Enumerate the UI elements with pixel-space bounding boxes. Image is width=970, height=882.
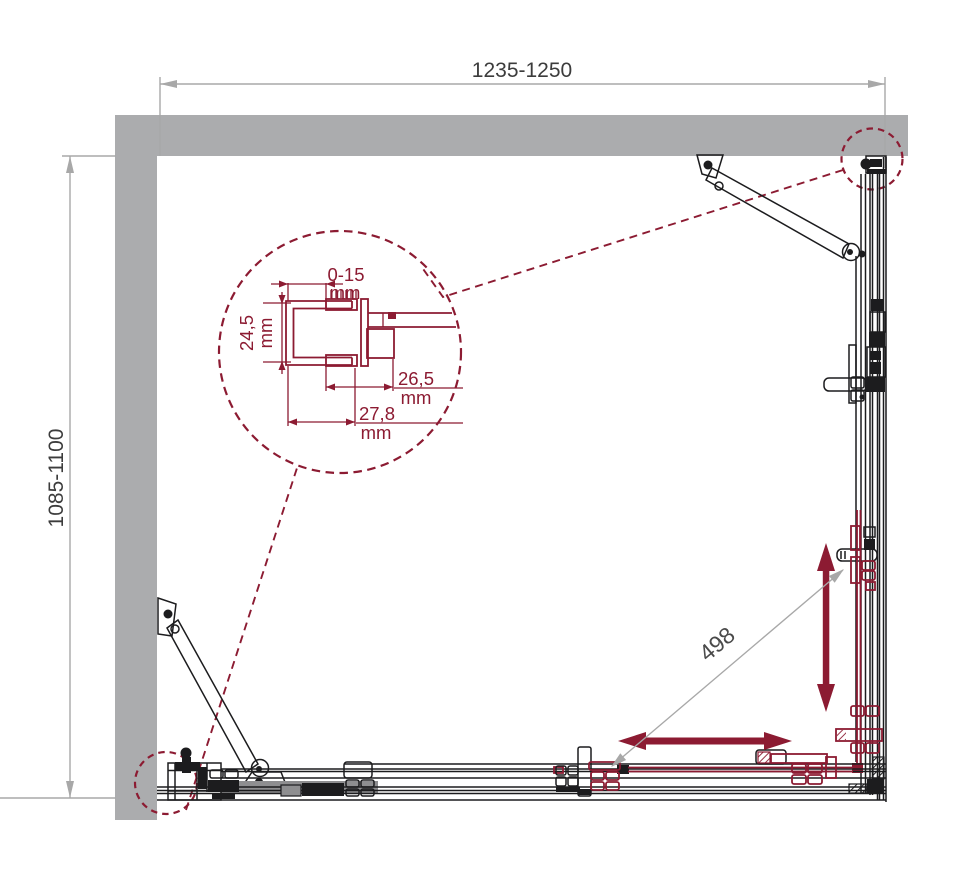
dim-arrow-left <box>160 80 177 88</box>
depth-dimension-label: 1085-1100 <box>45 429 68 528</box>
detail-dim-wall-gap: 0-15 mm <box>271 264 365 309</box>
arrow-head-up <box>817 543 835 571</box>
detail-dim-profile-depth: 24,5 mm <box>236 292 291 374</box>
support-bar <box>167 620 258 772</box>
svg-text:26,5: 26,5 <box>398 368 434 389</box>
leader-line-bottom <box>186 468 297 810</box>
bottom-roller-cluster-left <box>208 770 239 799</box>
support-bar <box>706 168 849 258</box>
door-handle-cluster <box>554 747 629 796</box>
detail-callout-leaders <box>135 129 903 815</box>
walls <box>115 115 908 820</box>
svg-text:mm: mm <box>361 422 392 443</box>
slide-arrow-horizontal <box>618 732 792 750</box>
entry-dimension-label: 498 <box>694 622 740 667</box>
svg-text:mm: mm <box>401 387 432 408</box>
dimension-left-depth: 1085-1100 <box>0 156 116 798</box>
detail-dim-outer-width: 27,8 mm <box>288 366 463 443</box>
technical-drawing-canvas: 1235-1250 1085-1100 <box>0 0 970 882</box>
arrow-head-down <box>817 684 835 712</box>
leader-line-top <box>421 170 843 297</box>
dim-arrow-down <box>66 781 74 798</box>
top-wall <box>115 115 908 156</box>
profile-lower-chamber <box>367 329 394 358</box>
svg-text:mm: mm <box>330 282 361 303</box>
left-wall <box>115 115 157 820</box>
svg-text:27,8: 27,8 <box>359 403 395 424</box>
width-dimension-label: 1235-1250 <box>472 59 572 82</box>
dimension-diagonal-entry: 498 <box>611 569 844 767</box>
screw-dot <box>704 161 713 170</box>
slide-arrow-vertical <box>817 543 835 712</box>
svg-text:mm: mm <box>255 318 276 349</box>
svg-text:24,5: 24,5 <box>236 315 257 351</box>
right-roller-cluster-lower-red <box>836 706 882 753</box>
shower-enclosure-plan-drawing: 1235-1250 1085-1100 <box>0 0 970 882</box>
arrow-head-right <box>764 732 792 750</box>
wall-bracket-top-right <box>861 156 887 174</box>
adjuster-knob <box>181 748 192 759</box>
profile-detail-view: 0-15 mm 24,5 mm 26,5 mm <box>236 264 463 443</box>
dim-arrow-up <box>66 156 74 173</box>
right-roller-cluster-black <box>824 299 885 403</box>
screw-dot <box>164 610 173 619</box>
dim-arrow-right <box>868 80 885 88</box>
